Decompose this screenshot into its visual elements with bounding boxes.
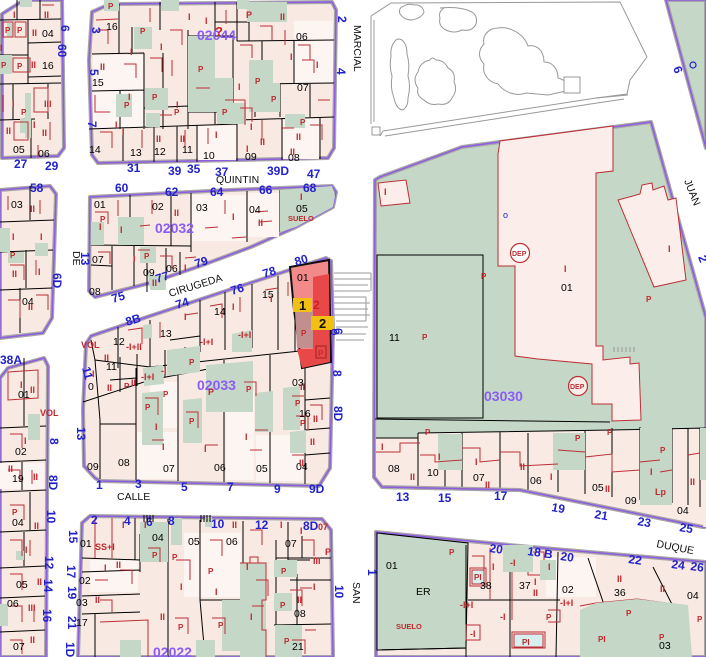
svg-text:I: I	[270, 294, 273, 304]
svg-text:21: 21	[292, 641, 304, 653]
svg-text:II: II	[28, 302, 33, 312]
svg-text:I: I	[20, 380, 23, 390]
svg-text:19: 19	[12, 473, 24, 485]
svg-text:P: P	[21, 108, 27, 117]
svg-text:06: 06	[226, 536, 238, 548]
svg-text:I: I	[250, 612, 253, 622]
svg-text:I: I	[133, 254, 136, 264]
svg-text:II: II	[520, 462, 525, 472]
svg-text:8D: 8D	[303, 519, 319, 533]
svg-text:PI: PI	[522, 638, 530, 647]
svg-text:P: P	[100, 215, 106, 224]
svg-text:II: II	[30, 635, 35, 645]
svg-text:P: P	[607, 428, 613, 437]
svg-text:P: P	[152, 551, 158, 560]
svg-text:II: II	[313, 414, 318, 424]
svg-text:I: I	[155, 422, 158, 432]
svg-text:P: P	[697, 615, 703, 624]
svg-text:P: P	[301, 329, 307, 338]
svg-text:10: 10	[211, 517, 225, 531]
svg-text:60: 60	[55, 44, 69, 58]
svg-text:I: I	[180, 582, 183, 592]
svg-text:II: II	[174, 208, 179, 218]
svg-text:2: 2	[313, 298, 320, 312]
svg-text:P: P	[178, 623, 184, 632]
svg-text:II: II	[33, 472, 38, 482]
svg-text:I: I	[12, 232, 15, 242]
svg-text:8D: 8D	[46, 475, 60, 491]
svg-text:Lp: Lp	[655, 487, 666, 497]
svg-text:I: I	[650, 467, 653, 477]
svg-text:47: 47	[307, 167, 321, 181]
svg-text:P: P	[1, 61, 7, 70]
svg-text:01: 01	[297, 272, 309, 284]
svg-text:I: I	[12, 99, 15, 109]
svg-text:I: I	[475, 457, 478, 467]
svg-text:05: 05	[256, 463, 268, 475]
svg-text:I: I	[668, 244, 671, 254]
svg-text:II: II	[34, 521, 39, 531]
svg-text:ER: ER	[416, 586, 431, 598]
svg-text:17: 17	[494, 489, 508, 503]
svg-text:I: I	[38, 267, 41, 277]
svg-text:SS+I: SS+I	[95, 542, 115, 552]
svg-text:P: P	[172, 553, 178, 562]
svg-text:P: P	[12, 508, 18, 517]
svg-text:1D: 1D	[63, 642, 77, 657]
svg-text:P: P	[295, 399, 301, 408]
svg-text:17: 17	[76, 617, 88, 629]
svg-text:I: I	[492, 562, 495, 572]
svg-text:I: I	[215, 130, 218, 140]
svg-text:24: 24	[671, 557, 686, 573]
svg-text:VOL: VOL	[40, 408, 59, 418]
svg-text:I: I	[184, 312, 187, 322]
svg-text:II: II	[296, 132, 301, 142]
svg-text:07: 07	[297, 82, 309, 94]
svg-text:P: P	[300, 419, 306, 428]
svg-text:12: 12	[113, 336, 125, 348]
svg-text:I: I	[232, 302, 235, 312]
svg-text:I: I	[550, 472, 553, 482]
svg-text:SAN: SAN	[350, 582, 362, 604]
svg-text:07: 07	[285, 538, 297, 550]
svg-text:39D: 39D	[267, 164, 289, 178]
svg-text:?: ?	[215, 24, 223, 39]
svg-text:31: 31	[127, 161, 141, 175]
svg-text:I: I	[160, 42, 163, 52]
svg-text:II: II	[660, 584, 665, 594]
svg-text:20: 20	[560, 549, 575, 565]
svg-text:04: 04	[42, 28, 54, 40]
svg-text:I: I	[104, 563, 107, 573]
svg-text:II: II	[160, 612, 165, 622]
svg-text:09: 09	[87, 461, 99, 473]
svg-text:I: I	[115, 120, 118, 130]
svg-text:08: 08	[118, 457, 130, 469]
svg-text:02: 02	[15, 446, 27, 458]
svg-text:64: 64	[210, 185, 224, 199]
svg-text:03: 03	[196, 202, 208, 214]
svg-text:62: 62	[165, 185, 179, 199]
svg-text:25: 25	[678, 520, 694, 536]
svg-text:15: 15	[92, 77, 104, 89]
svg-text:06: 06	[214, 462, 226, 474]
svg-text:III: III	[313, 556, 321, 566]
svg-text:I: I	[204, 444, 207, 454]
svg-text:05: 05	[16, 579, 28, 591]
svg-text:I: I	[122, 127, 125, 137]
svg-text:13: 13	[74, 427, 88, 441]
svg-text:6: 6	[331, 328, 345, 335]
svg-text:20: 20	[489, 541, 504, 557]
svg-text:II: II	[290, 147, 295, 157]
svg-text:01: 01	[80, 538, 92, 550]
svg-text:-I: -I	[510, 558, 516, 568]
svg-text:I: I	[438, 452, 441, 462]
svg-text:P: P	[17, 26, 23, 35]
svg-text:P: P	[425, 428, 431, 437]
svg-text:I: I	[246, 562, 249, 572]
svg-text:17: 17	[64, 565, 78, 579]
svg-text:III: III	[44, 99, 52, 109]
svg-text:MARCIAL: MARCIAL	[351, 25, 363, 72]
svg-text:04: 04	[12, 517, 24, 529]
svg-text:P: P	[145, 403, 151, 412]
svg-text:I: I	[188, 12, 191, 22]
svg-text:-I+I: -I+I	[460, 600, 473, 610]
svg-text:P: P	[222, 108, 228, 117]
svg-text:I: I	[238, 82, 241, 92]
svg-text:4: 4	[334, 68, 348, 75]
svg-text:P: P	[449, 548, 455, 557]
svg-text:08: 08	[294, 608, 306, 620]
svg-text:III: III	[28, 603, 36, 613]
svg-text:I: I	[122, 520, 125, 530]
svg-text:3: 3	[89, 27, 103, 34]
svg-text:P: P	[246, 10, 252, 20]
svg-text:4: 4	[124, 514, 131, 528]
svg-text:8: 8	[47, 438, 61, 445]
svg-text:P: P	[281, 567, 287, 576]
svg-text:I: I	[120, 225, 123, 235]
svg-text:DEP: DEP	[570, 384, 585, 391]
svg-text:P: P	[546, 613, 552, 622]
svg-text:19: 19	[550, 500, 566, 516]
svg-text:II: II	[152, 278, 157, 288]
svg-text:P: P	[208, 387, 214, 397]
svg-text:35: 35	[187, 162, 201, 176]
svg-text:58: 58	[30, 181, 44, 195]
svg-text:o: o	[503, 210, 508, 220]
svg-text:03030: 03030	[484, 388, 523, 404]
svg-text:I: I	[13, 10, 16, 20]
svg-text:I: I	[0, 43, 3, 53]
svg-text:II: II	[310, 437, 315, 447]
svg-text:I: I	[300, 526, 303, 536]
svg-text:I: I	[564, 264, 567, 274]
svg-text:07: 07	[92, 254, 104, 266]
svg-text:II: II	[42, 128, 47, 138]
svg-text:P: P	[280, 601, 286, 610]
svg-text:I: I	[33, 120, 36, 130]
svg-text:II: II	[485, 480, 490, 490]
svg-text:DEP: DEP	[512, 251, 527, 258]
svg-text:I: I	[130, 47, 133, 57]
svg-text:P: P	[575, 434, 581, 443]
svg-text:5: 5	[87, 69, 101, 76]
svg-text:I: I	[25, 545, 28, 555]
svg-text:06: 06	[38, 148, 50, 160]
svg-text:05: 05	[13, 144, 25, 156]
svg-text:P: P	[284, 637, 290, 646]
svg-text:01: 01	[386, 560, 398, 572]
svg-text:P: P	[626, 609, 632, 618]
svg-text:04: 04	[677, 505, 689, 517]
svg-text:II: II	[30, 385, 35, 395]
svg-text:I: I	[205, 16, 208, 26]
svg-text:02: 02	[152, 201, 164, 213]
svg-text:II: II	[6, 126, 11, 136]
svg-text:II: II	[104, 353, 109, 363]
svg-text:II: II	[116, 560, 121, 570]
svg-text:03: 03	[11, 199, 23, 211]
svg-text:8: 8	[168, 514, 175, 528]
svg-text:P: P	[246, 385, 252, 394]
svg-text:3: 3	[135, 477, 142, 491]
svg-text:37: 37	[215, 165, 229, 179]
svg-text:P: P	[198, 65, 204, 74]
svg-text:68: 68	[303, 181, 317, 195]
svg-text:II: II	[260, 137, 265, 147]
svg-text:SUELO: SUELO	[396, 622, 422, 631]
svg-text:P: P	[271, 95, 277, 104]
svg-text:7: 7	[227, 480, 234, 494]
svg-text:37: 37	[519, 580, 531, 592]
svg-text:-I: -I	[161, 366, 167, 376]
svg-text:38: 38	[480, 580, 492, 592]
svg-text:I: I	[290, 52, 293, 62]
svg-text:7: 7	[85, 121, 99, 128]
svg-text:08: 08	[89, 286, 101, 298]
svg-text:9: 9	[274, 482, 281, 496]
svg-text:16: 16	[42, 60, 54, 72]
svg-text:-I: -I	[500, 612, 506, 622]
svg-text:II: II	[690, 477, 695, 487]
svg-text:II: II	[37, 577, 42, 587]
svg-text:05: 05	[188, 536, 200, 548]
svg-text:23: 23	[636, 514, 652, 530]
svg-text:14: 14	[89, 144, 101, 156]
svg-text:I: I	[300, 192, 303, 202]
svg-text:-I+II: -I+II	[126, 342, 142, 352]
svg-text:P: P	[140, 27, 146, 36]
svg-text:12: 12	[154, 146, 166, 158]
svg-text:60: 60	[115, 181, 129, 195]
svg-text:13: 13	[130, 147, 142, 159]
svg-text:II: II	[605, 484, 610, 494]
svg-text:II: II	[12, 269, 17, 279]
svg-text:II: II	[32, 28, 37, 38]
svg-text:06: 06	[166, 263, 178, 275]
svg-text:16: 16	[106, 21, 118, 33]
svg-text:21: 21	[593, 507, 609, 523]
svg-text:10: 10	[44, 510, 58, 524]
svg-text:I: I	[316, 60, 319, 70]
svg-text:9D: 9D	[309, 482, 325, 496]
svg-text:I: I	[313, 582, 316, 592]
svg-text:P: P	[189, 417, 195, 426]
svg-text:P: P	[659, 633, 665, 642]
svg-text:02: 02	[79, 575, 91, 587]
svg-text:06: 06	[7, 598, 19, 610]
svg-text:09: 09	[625, 495, 637, 507]
svg-text:02022: 02022	[153, 644, 192, 657]
svg-text:P: P	[422, 333, 428, 342]
svg-text:6D: 6D	[50, 273, 64, 289]
svg-text:-I+I: -I+I	[238, 330, 251, 340]
svg-text:P: P	[124, 101, 130, 110]
svg-text:13: 13	[396, 490, 410, 504]
svg-text:I: I	[162, 442, 165, 452]
svg-text:02032: 02032	[155, 220, 194, 236]
svg-text:P: P	[481, 272, 487, 281]
svg-text:I: I	[245, 432, 248, 442]
svg-text:2: 2	[91, 513, 98, 527]
svg-text:15: 15	[438, 491, 452, 505]
svg-text:P: P	[5, 26, 11, 35]
svg-text:39: 39	[168, 164, 182, 178]
svg-text:II: II	[131, 378, 136, 388]
svg-text:I: I	[176, 100, 179, 110]
svg-text:-I: -I	[470, 629, 476, 639]
svg-text:15: 15	[66, 530, 80, 544]
svg-text:-I+I: -I+I	[560, 598, 573, 608]
svg-text:02: 02	[562, 584, 574, 596]
svg-text:02033: 02033	[197, 377, 236, 393]
svg-text:I: I	[548, 562, 551, 572]
svg-text:07: 07	[318, 522, 328, 532]
svg-text:I: I	[250, 122, 253, 132]
svg-text:8: 8	[330, 370, 344, 377]
svg-text:I: I	[232, 212, 235, 222]
svg-text:P: P	[255, 77, 261, 86]
svg-text:P: P	[124, 382, 130, 391]
svg-text:I: I	[40, 232, 43, 242]
svg-text:II: II	[180, 134, 185, 144]
svg-text:II: II	[8, 464, 13, 474]
svg-text:07: 07	[163, 463, 175, 475]
svg-text:II: II	[95, 595, 100, 605]
svg-text:04: 04	[249, 204, 261, 216]
svg-text:II: II	[258, 218, 263, 228]
svg-text:P: P	[152, 93, 158, 102]
svg-text:II: II	[617, 574, 622, 584]
svg-text:-I+I: -I+I	[141, 372, 154, 382]
svg-text:II: II	[533, 588, 538, 598]
svg-text:P: P	[10, 251, 16, 260]
svg-text:07: 07	[473, 472, 485, 484]
svg-text:I: I	[92, 369, 95, 379]
svg-text:06: 06	[296, 31, 308, 43]
svg-text:II: II	[280, 12, 285, 22]
svg-text:P: P	[325, 547, 331, 557]
svg-text:P: P	[189, 358, 195, 367]
svg-text:I: I	[384, 187, 387, 197]
svg-text:P: P	[660, 446, 666, 455]
svg-text:11: 11	[182, 144, 193, 156]
svg-text:13: 13	[160, 328, 172, 340]
svg-text:12: 12	[42, 556, 56, 570]
svg-text:2: 2	[335, 16, 349, 23]
svg-text:II: II	[156, 134, 161, 144]
svg-text:01: 01	[18, 389, 30, 401]
svg-text:II: II	[44, 10, 49, 20]
svg-text:CALLE: CALLE	[117, 491, 150, 503]
svg-text:06: 06	[530, 475, 542, 487]
svg-text:14: 14	[41, 579, 55, 593]
svg-text:66: 66	[259, 183, 273, 197]
svg-text:PI: PI	[598, 635, 606, 644]
svg-text:26: 26	[690, 559, 705, 575]
svg-text:I: I	[280, 520, 283, 530]
svg-text:0: 0	[88, 381, 94, 393]
svg-text:P: P	[108, 2, 114, 11]
svg-text:I: I	[24, 436, 27, 446]
svg-text:II: II	[300, 382, 305, 392]
svg-text:I: I	[246, 144, 249, 154]
svg-text:VOL: VOL	[81, 340, 100, 350]
svg-text:P: P	[300, 118, 306, 127]
svg-text:I: I	[128, 92, 131, 102]
svg-text:08: 08	[388, 463, 400, 475]
svg-text:04: 04	[152, 532, 164, 544]
svg-text:II: II	[100, 62, 105, 72]
svg-text:27: 27	[14, 157, 28, 171]
svg-text:04: 04	[687, 590, 699, 602]
svg-text:PI: PI	[474, 573, 482, 582]
svg-text:1: 1	[299, 298, 306, 313]
svg-text:1: 1	[96, 478, 103, 492]
svg-text:13: 13	[78, 252, 92, 266]
svg-text:8D: 8D	[331, 406, 345, 422]
svg-text:II: II	[31, 60, 36, 70]
svg-text:07: 07	[13, 641, 25, 653]
svg-text:P: P	[208, 567, 214, 576]
svg-text:03: 03	[76, 597, 88, 609]
svg-text:29: 29	[45, 159, 59, 173]
svg-text:2: 2	[319, 316, 326, 331]
svg-text:P: P	[218, 621, 224, 630]
svg-text:II: II	[107, 383, 112, 393]
svg-text:6: 6	[58, 25, 72, 32]
svg-text:38A: 38A	[0, 353, 22, 367]
svg-text:22: 22	[628, 552, 643, 568]
svg-text:P: P	[646, 295, 652, 304]
svg-text:1: 1	[365, 569, 379, 576]
svg-text:11: 11	[389, 332, 400, 344]
svg-text:II: II	[30, 204, 35, 214]
svg-text:01: 01	[561, 282, 573, 294]
svg-text:P: P	[144, 252, 150, 261]
svg-text:I: I	[184, 263, 187, 273]
svg-text:I: I	[381, 442, 384, 452]
svg-text:II: II	[232, 520, 237, 530]
svg-text:I: I	[534, 577, 537, 587]
svg-text:II: II	[299, 458, 304, 468]
svg-text:II: II	[297, 595, 302, 605]
svg-text:01: 01	[94, 199, 106, 211]
